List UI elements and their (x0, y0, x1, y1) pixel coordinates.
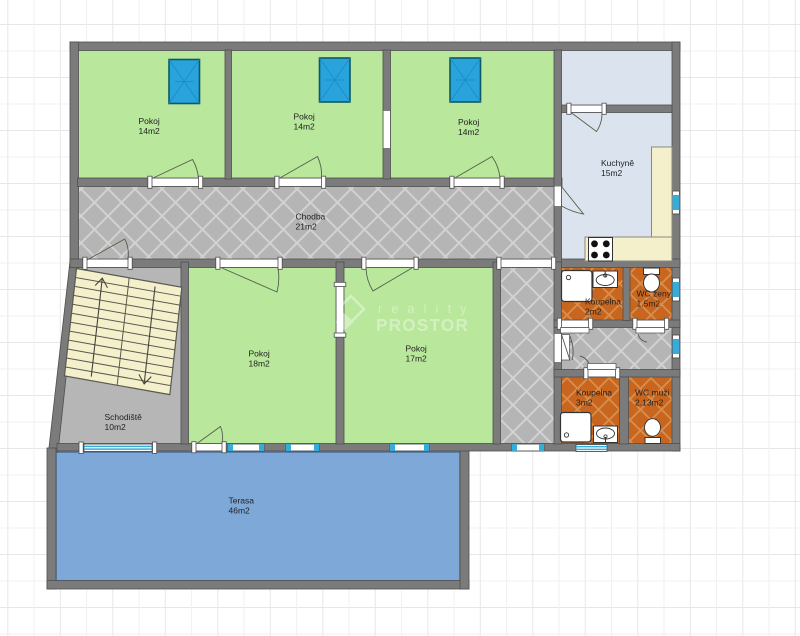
svg-text:3m2: 3m2 (576, 398, 593, 408)
svg-text:2m2: 2m2 (585, 307, 602, 317)
svg-text:Pokoj: Pokoj (249, 349, 270, 359)
svg-text:Koupelna: Koupelna (585, 297, 621, 307)
svg-text:Pokoj: Pokoj (406, 344, 427, 354)
svg-text:10m2: 10m2 (105, 422, 127, 432)
svg-text:2.13m2: 2.13m2 (635, 398, 664, 408)
svg-text:reality: reality (378, 302, 476, 316)
svg-text:Pokoj: Pokoj (139, 116, 160, 126)
svg-text:Pokoj: Pokoj (294, 112, 315, 122)
svg-text:1.5m2: 1.5m2 (637, 299, 661, 309)
svg-text:18m2: 18m2 (249, 359, 271, 369)
svg-text:Koupelna: Koupelna (576, 388, 612, 398)
svg-text:Kuchyně: Kuchyně (601, 158, 634, 168)
svg-text:15m2: 15m2 (601, 168, 623, 178)
svg-text:Schodiště: Schodiště (105, 412, 143, 422)
svg-text:Terasa: Terasa (229, 496, 255, 506)
svg-text:WC ženy: WC ženy (637, 289, 672, 299)
svg-text:21m2: 21m2 (296, 222, 318, 232)
svg-text:14m2: 14m2 (458, 127, 480, 137)
svg-text:46m2: 46m2 (229, 506, 251, 516)
svg-text:14m2: 14m2 (139, 126, 161, 136)
svg-text:WC muži: WC muži (635, 388, 670, 398)
svg-text:Chodba: Chodba (296, 212, 326, 222)
svg-text:17m2: 17m2 (406, 354, 428, 364)
svg-text:PROSTOR: PROSTOR (376, 315, 469, 335)
svg-text:14m2: 14m2 (294, 122, 316, 132)
svg-text:Pokoj: Pokoj (458, 117, 479, 127)
